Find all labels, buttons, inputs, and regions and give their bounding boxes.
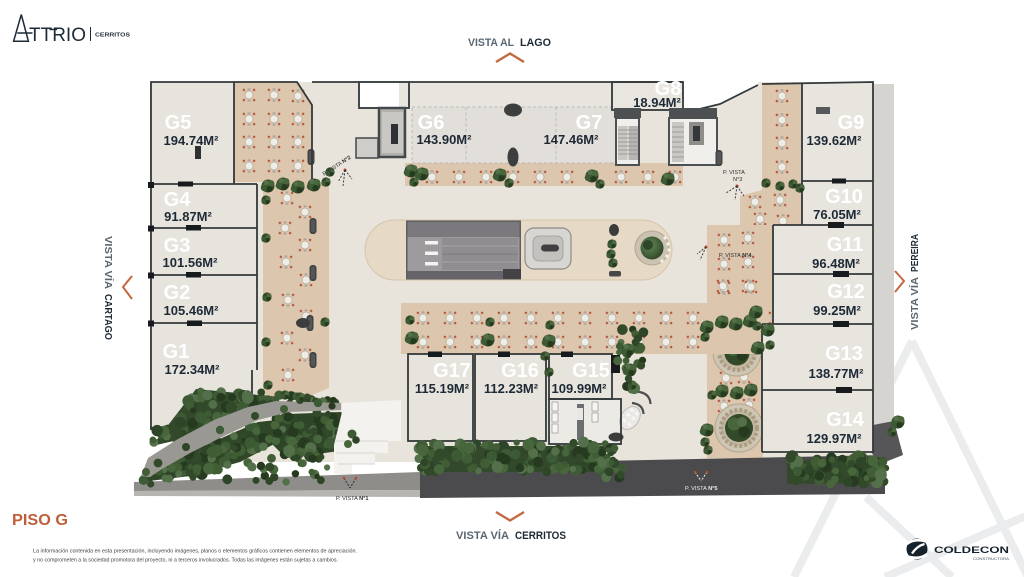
- svg-text:101.56M²: 101.56M²: [163, 255, 219, 270]
- svg-text:P. VISTA N°4: P. VISTA N°4: [719, 253, 752, 259]
- svg-text:96.48M²: 96.48M²: [812, 256, 860, 271]
- svg-text:PISO G: PISO G: [12, 512, 68, 529]
- svg-text:G7: G7: [576, 112, 603, 134]
- svg-text:115.19M²: 115.19M²: [415, 381, 470, 396]
- svg-text:CERRITOS: CERRITOS: [95, 33, 131, 39]
- svg-text:G9: G9: [838, 112, 865, 134]
- svg-text:CARTAGO: CARTAGO: [102, 294, 114, 340]
- svg-text:LAGO: LAGO: [520, 37, 551, 49]
- svg-text:129.97M²: 129.97M²: [807, 431, 863, 446]
- svg-text:143.90M²: 143.90M²: [417, 132, 473, 147]
- svg-text:G5: G5: [165, 112, 192, 134]
- svg-text:PEREIRA: PEREIRA: [909, 234, 921, 272]
- svg-text:y no comprometen a la sociedad: y no comprometen a la sociedad promotora…: [33, 558, 338, 564]
- svg-text:G14: G14: [826, 409, 865, 431]
- svg-text:G3: G3: [164, 235, 191, 257]
- svg-text:76.05M²: 76.05M²: [813, 207, 861, 222]
- svg-text:P. VISTA N°5: P. VISTA N°5: [685, 486, 718, 492]
- svg-text:G6: G6: [418, 112, 445, 134]
- svg-text:VISTA VÍA: VISTA VÍA: [456, 529, 509, 542]
- svg-text:172.34M²: 172.34M²: [165, 362, 221, 377]
- svg-text:COLDECON: COLDECON: [934, 545, 1009, 556]
- svg-text:G2: G2: [164, 282, 191, 304]
- svg-text:G12: G12: [827, 281, 865, 303]
- svg-text:N°3: N°3: [733, 177, 742, 183]
- svg-text:105.46M²: 105.46M²: [164, 303, 220, 318]
- svg-text:TTRIO: TTRIO: [29, 25, 86, 46]
- svg-text:CONSTRUCTORA: CONSTRUCTORA: [973, 557, 1010, 561]
- svg-text:P. VISTA N°1: P. VISTA N°1: [336, 496, 369, 502]
- svg-text:109.99M²: 109.99M²: [552, 381, 608, 396]
- svg-text:CERRITOS: CERRITOS: [515, 530, 566, 542]
- svg-text:G11: G11: [827, 234, 864, 256]
- svg-text:G13: G13: [825, 343, 863, 365]
- svg-text:138.77M²: 138.77M²: [809, 366, 865, 381]
- svg-text:194.74M²: 194.74M²: [164, 133, 220, 148]
- svg-text:G16: G16: [501, 360, 539, 382]
- svg-text:139.62M²: 139.62M²: [807, 133, 863, 148]
- svg-text:VISTA AL: VISTA AL: [468, 37, 514, 49]
- svg-text:G4: G4: [164, 189, 192, 211]
- svg-text:147.46M²: 147.46M²: [544, 132, 600, 147]
- svg-text:VISTA VÍA: VISTA VÍA: [102, 236, 115, 289]
- svg-text:112.23M²: 112.23M²: [484, 381, 539, 396]
- svg-text:G15: G15: [572, 360, 610, 382]
- svg-text:G1: G1: [163, 341, 190, 363]
- svg-text:VISTA VÍA: VISTA VÍA: [908, 277, 921, 330]
- svg-text:La información contenida en es: La información contenida en esta present…: [33, 549, 357, 555]
- svg-text:P. VISTA: P. VISTA: [723, 170, 745, 176]
- svg-text:91.87M²: 91.87M²: [164, 209, 212, 224]
- svg-text:18.94M²: 18.94M²: [633, 95, 681, 110]
- svg-text:G17: G17: [433, 360, 471, 382]
- svg-text:G10: G10: [825, 186, 863, 208]
- svg-text:99.25M²: 99.25M²: [813, 303, 861, 318]
